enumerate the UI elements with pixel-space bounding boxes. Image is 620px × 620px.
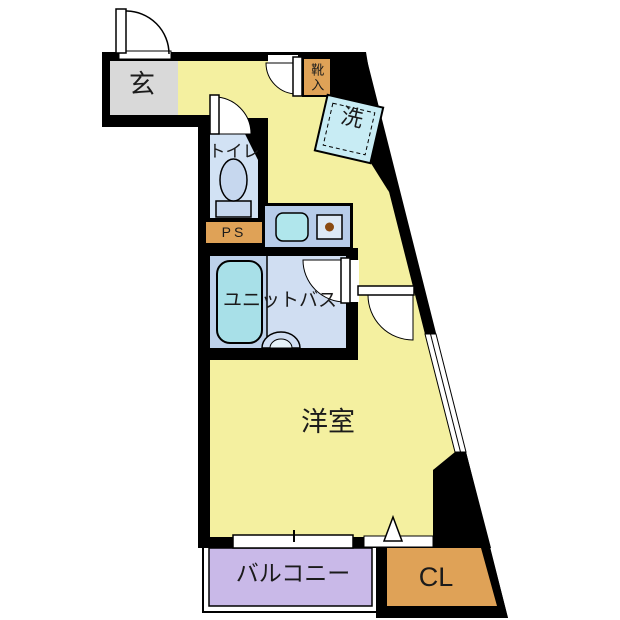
shoe-box-label: 靴入 [309, 61, 323, 95]
entrance-door-leaf [116, 9, 126, 53]
floor-plan: 玄 靴入 洗 トイレ PS ユニットバス 洋室 バルコニー CL [0, 0, 620, 620]
main-room-label: 洋室 [286, 408, 370, 438]
burner-dot [325, 223, 334, 232]
unit-bath-label: ユニットバス [213, 291, 347, 312]
kitchen-counter [262, 203, 353, 250]
toilet-label: トイレ [204, 143, 264, 162]
toilet-tank [216, 201, 251, 217]
genkan-label: 玄 [127, 70, 157, 99]
balcony-label: バルコニー [231, 561, 355, 586]
toilet-bowl [220, 159, 247, 201]
entrance-door-sill [119, 51, 171, 59]
kitchen-sink [276, 213, 308, 241]
pipe-space-label: PS [206, 225, 262, 240]
toilet-door-leaf [210, 95, 219, 134]
entrance-door-arc [126, 11, 169, 54]
hall-door-leaf [293, 57, 302, 96]
closet-label: CL [408, 563, 464, 593]
closet-corner-wall [433, 452, 491, 548]
entrance-door [116, 9, 171, 59]
room-door-leaf [358, 286, 414, 295]
